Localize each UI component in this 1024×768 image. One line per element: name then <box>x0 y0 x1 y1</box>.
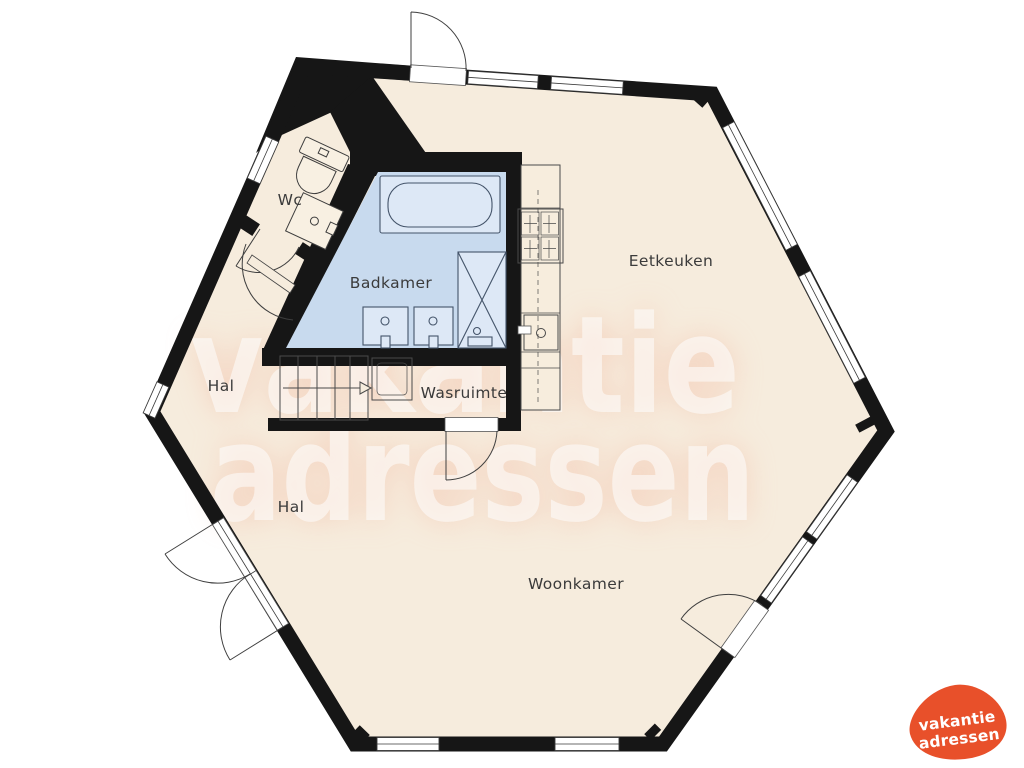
label-woonkamer: Woonkamer <box>528 575 624 593</box>
bathtub-icon <box>380 176 500 233</box>
floorplan-svg: vakantie adressen vakantie adressen <box>0 0 1024 768</box>
label-badkamer: Badkamer <box>350 274 433 292</box>
hall-wall-right <box>498 418 521 431</box>
window-bottom-left <box>377 738 439 751</box>
window-bottom-right <box>555 738 619 751</box>
label-hal-onder: Hal <box>278 498 305 516</box>
label-wasruimte: Wasruimte <box>421 384 508 402</box>
floorplan-page: vakantie adressen vakantie adressen <box>0 0 1024 768</box>
label-wc: Wc <box>278 191 303 209</box>
label-eetkeuken: Eetkeuken <box>629 252 714 270</box>
washbasin-left-icon <box>363 307 408 348</box>
label-hal-boven: Hal <box>208 377 235 395</box>
washbasin-right-icon <box>414 307 453 348</box>
kitchen-counter <box>518 165 563 410</box>
shower-icon <box>458 252 506 348</box>
